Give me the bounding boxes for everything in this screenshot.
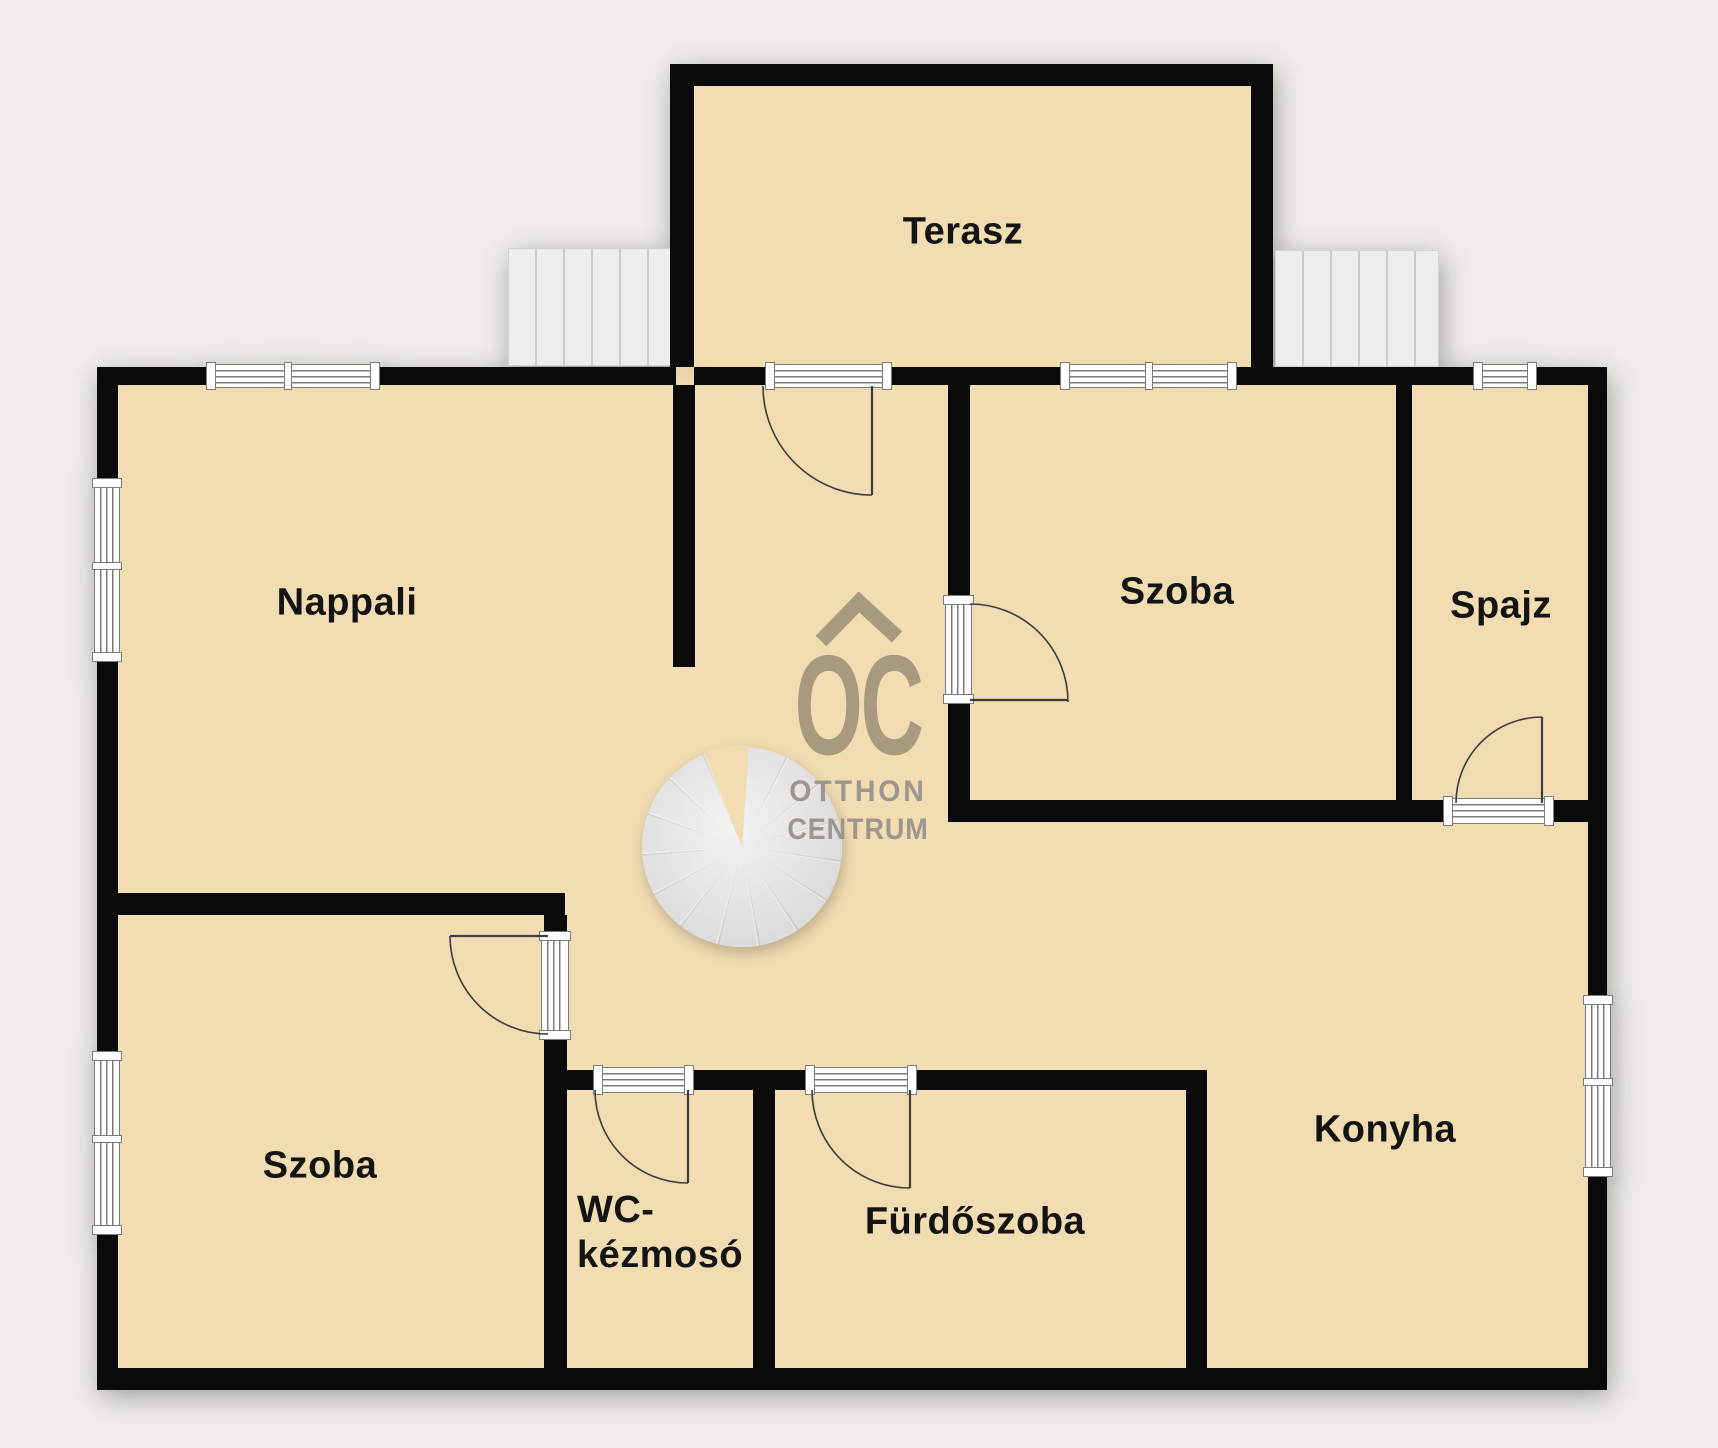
watermark-brand-line2: CENTRUM: [787, 813, 928, 847]
watermark-brand-line1: OTTHON: [789, 775, 926, 809]
floor-plan: Terasz Nappali Szoba Spajz Szoba WC- kéz…: [0, 0, 1718, 1448]
otthon-centrum-logo: OC: [794, 624, 921, 788]
